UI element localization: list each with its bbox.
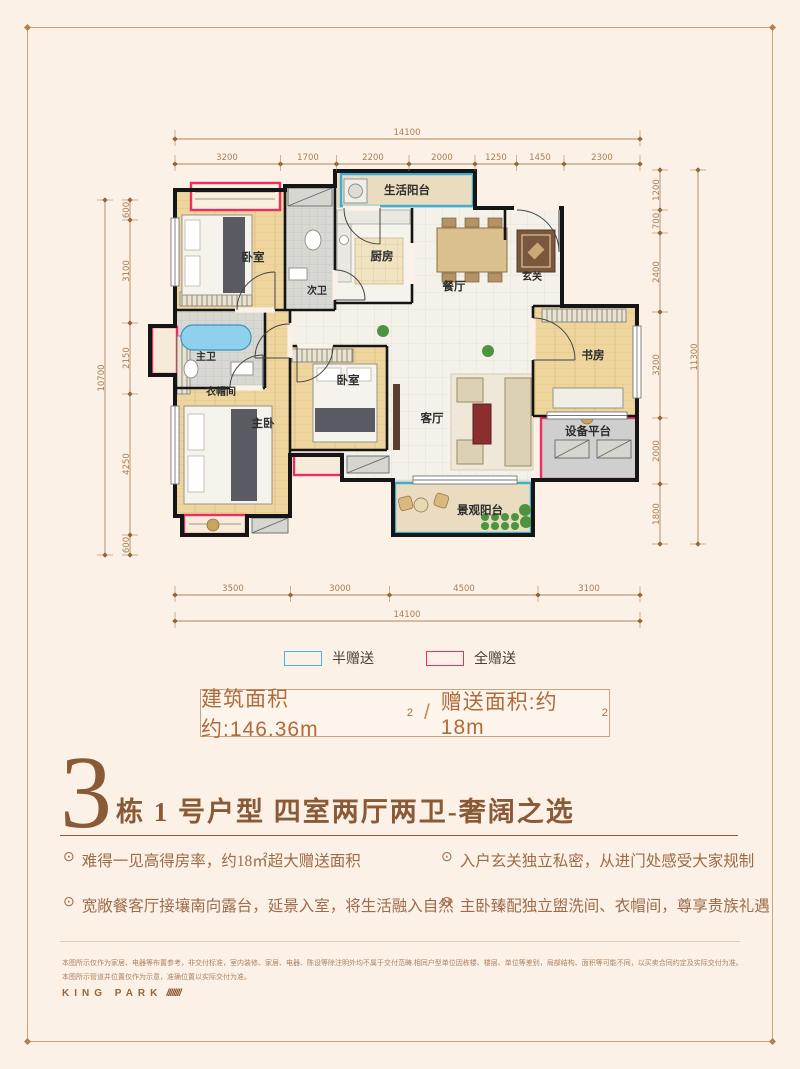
washer — [344, 179, 367, 203]
feature-item: ⊙ 难得一见高得房率，约18㎡超大赠送面积 — [63, 849, 441, 871]
brand-name: KING PARK — [62, 988, 162, 999]
dim: 2300 — [591, 153, 613, 163]
feature-item: ⊙ 入户玄关独立私密，从进门处感受大家规制 — [441, 849, 770, 871]
dim: 3000 — [329, 584, 351, 594]
frame-corner-ornament — [769, 24, 776, 31]
room-label-kitchen: 厨房 — [371, 249, 394, 263]
dim: 2000 — [431, 153, 453, 163]
dim: 600 — [122, 537, 132, 553]
dim: 1700 — [297, 153, 319, 163]
unit-title: 3 栋 1 号户型 四室两厅两卫-奢阔之选 — [60, 752, 575, 833]
dim: 2150 — [122, 347, 132, 369]
building-area-text: 建筑面积约:146.36m — [201, 683, 406, 743]
dim: 1200 — [652, 179, 662, 201]
feature-item: ⊙ 宽敞餐客厅接壤南向露台，延景入室，将生活融入自然 — [63, 894, 441, 916]
unit-title-text: 栋 1 号户型 四室两厅两卫-奢阔之选 — [112, 790, 575, 833]
brand-line: KING PARK//////// — [62, 987, 752, 1001]
feature-text: 入户玄关独立私密，从进门处感受大家规制 — [460, 849, 755, 871]
room-label-view-balcony: 景观阳台 — [456, 503, 503, 517]
dim-bottom-total: 14100 — [393, 610, 420, 620]
room-label-cloakroom: 衣帽间 — [206, 385, 236, 398]
room-label-bath-second: 次卫 — [307, 284, 327, 297]
dim: 1450 — [529, 153, 551, 163]
bullet-icon: ⊙ — [441, 849, 453, 867]
dim: 3500 — [222, 584, 244, 594]
dim: 1800 — [652, 503, 662, 525]
foyer-carpet — [517, 230, 555, 272]
feature-text: 主卧臻配独立盥洗间、衣帽间，尊享贵族礼遇 — [460, 894, 770, 916]
dim: 700 — [652, 213, 662, 229]
disclaimer-line2: 本图所示管道井位置仅作为示意，准确位置以实际交付为准。 — [62, 970, 752, 984]
full-gift-annex-left — [152, 327, 177, 374]
frame-corner-ornament — [24, 1038, 31, 1045]
feature-list: ⊙ 难得一见高得房率，约18㎡超大赠送面积 ⊙ 入户玄关独立私密，从进门处感受大… — [63, 849, 743, 916]
area-banner: 建筑面积约:146.36m2 / 赠送面积:约18m2 — [200, 689, 610, 737]
full-gift-swatch — [426, 651, 464, 666]
room-label-study: 书房 — [582, 348, 605, 362]
dim-left-total: 10700 — [97, 364, 107, 391]
dim: 2200 — [362, 153, 384, 163]
bullet-icon: ⊙ — [63, 849, 75, 867]
banner-divider: / — [424, 701, 431, 725]
floorplan-page: 卧室 次卫 厨房 生活阳台 餐厅 玄关 书房 设备平台 景观阳台 客厅 卧室 主… — [0, 0, 800, 1069]
gift-area-sup: 2 — [602, 707, 609, 719]
wardrobe — [291, 349, 353, 362]
gift-area-text: 赠送面积:约18m — [441, 686, 601, 740]
dim: 3200 — [216, 153, 238, 163]
tv-cabinet — [393, 384, 400, 450]
dining-table — [437, 218, 507, 282]
footer-divider — [60, 941, 740, 942]
half-gift-swatch — [284, 651, 322, 666]
dim: 600 — [122, 202, 132, 218]
dim-right-total: 11300 — [690, 343, 700, 370]
title-underline — [60, 835, 738, 836]
disclaimer-line1: 本图所示仅作为家居、电器等布置参考，非交付标准，室内装修、家居、电器、陈设等除注… — [62, 956, 752, 970]
full-gift-bay-bedroom-top — [191, 183, 280, 210]
study-shelf — [542, 309, 626, 322]
half-gift-label: 半赠送 — [332, 648, 374, 668]
disclaimer: 本图所示仅作为家居、电器等布置参考，非交付标准，室内装修、家居、电器、陈设等除注… — [62, 956, 752, 1001]
brand-slashes: //////// — [166, 988, 180, 999]
feature-text: 难得一见高得房率，约18㎡超大赠送面积 — [82, 849, 361, 871]
frame-corner-ornament — [24, 24, 31, 31]
dim: 3100 — [122, 260, 132, 282]
room-label-equipment: 设备平台 — [565, 424, 611, 438]
legend-half-gift: 半赠送 — [284, 648, 374, 668]
floor-plan: 卧室 次卫 厨房 生活阳台 餐厅 玄关 书房 设备平台 景观阳台 客厅 卧室 主… — [85, 88, 725, 648]
room-label-life-balcony: 生活阳台 — [384, 183, 430, 197]
full-gift-label: 全赠送 — [474, 648, 516, 668]
room-label-dining: 餐厅 — [442, 279, 466, 293]
dim: 1250 — [485, 153, 507, 163]
room-label-bath-master: 主卫 — [196, 350, 216, 363]
building-area-sup: 2 — [407, 707, 414, 719]
dim: 2000 — [652, 440, 662, 462]
dim: 3200 — [652, 354, 662, 376]
room-label-bedroom-top: 卧室 — [242, 250, 265, 264]
building-number: 3 — [60, 752, 112, 833]
sink — [231, 362, 253, 375]
room-label-master: 主卧 — [252, 416, 275, 430]
dim: 4500 — [453, 584, 475, 594]
dim: 4250 — [122, 453, 132, 475]
full-gift-bay-mid — [294, 454, 342, 475]
room-label-foyer: 玄关 — [522, 270, 542, 283]
room-label-living: 客厅 — [420, 411, 444, 425]
legend: 半赠送 全赠送 — [0, 648, 800, 668]
legend-full-gift: 全赠送 — [426, 648, 516, 668]
room-label-bedroom-mid: 卧室 — [337, 373, 360, 387]
bullet-icon: ⊙ — [441, 894, 453, 912]
dim-top-total: 14100 — [393, 128, 420, 138]
frame-corner-ornament — [769, 1038, 776, 1045]
dim: 2400 — [652, 261, 662, 283]
feature-item: ⊙ 主卧臻配独立盥洗间、衣帽间，尊享贵族礼遇 — [441, 894, 770, 916]
feature-text: 宽敞餐客厅接壤南向露台，延景入室，将生活融入自然 — [82, 894, 454, 916]
dim: 3100 — [578, 584, 600, 594]
bullet-icon: ⊙ — [63, 894, 75, 912]
